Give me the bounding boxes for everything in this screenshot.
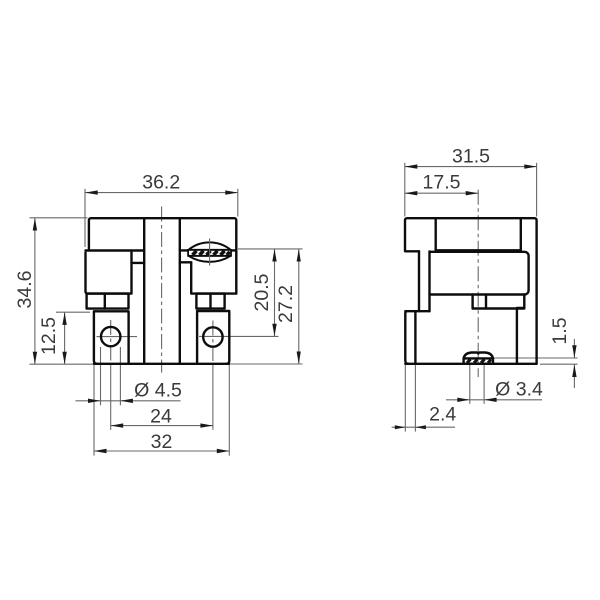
svg-text:20.5: 20.5 bbox=[251, 273, 273, 311]
svg-text:1.5: 1.5 bbox=[549, 317, 571, 344]
svg-text:34.6: 34.6 bbox=[14, 271, 36, 309]
svg-text:31.5: 31.5 bbox=[452, 146, 490, 168]
svg-text:Ø 3.4: Ø 3.4 bbox=[495, 378, 543, 400]
svg-text:27.2: 27.2 bbox=[275, 285, 297, 323]
svg-text:36.2: 36.2 bbox=[142, 172, 180, 194]
svg-text:17.5: 17.5 bbox=[423, 172, 461, 194]
svg-text:32: 32 bbox=[151, 431, 173, 453]
svg-text:24: 24 bbox=[150, 405, 172, 427]
svg-text:Ø 4.5: Ø 4.5 bbox=[134, 380, 182, 402]
svg-text:2.4: 2.4 bbox=[429, 403, 456, 425]
svg-text:12.5: 12.5 bbox=[38, 317, 60, 355]
